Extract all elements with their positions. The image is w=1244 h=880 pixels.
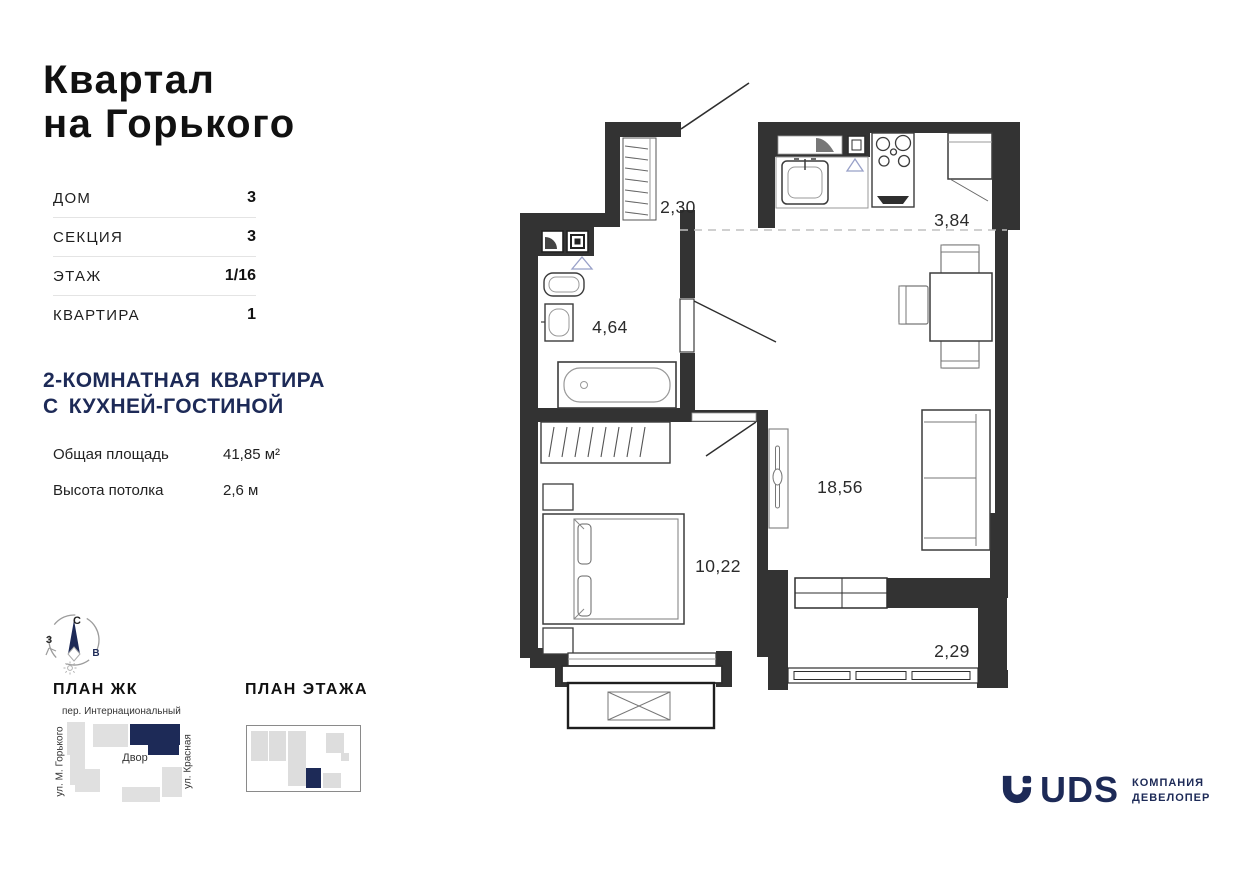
building-block [67,722,85,755]
building-block [75,769,100,792]
fridge [948,133,992,201]
uds-tagline: КОМПАНИЯ ДЕВЕЛОПЕР [1132,777,1210,804]
flat-block [341,753,349,761]
spec-ceiling-height: Высота потолка 2,6 м [53,482,333,499]
chair-back [941,361,979,368]
bedroom-door [692,413,756,456]
building-block [122,787,160,802]
room-label-balcony: 2,29 [934,641,970,661]
courtyard-label: Двор [105,752,165,764]
kitchen-window [778,136,865,154]
spec-total-area: Общая площадь 41,85 м² [53,446,333,463]
pillow [578,576,591,616]
building-block [93,724,128,747]
nightstand [543,628,573,654]
jk-plan-title: ПЛАН ЖК [53,681,138,699]
flat-block [288,731,306,786]
compass-north-label: С [73,615,81,627]
floor-plan-drawing: 2,30 3,84 4,64 18,56 10,22 2,29 [520,80,1020,752]
uds-tagline-line1: КОМПАНИЯ [1132,777,1210,789]
room-label-bedroom: 10,22 [695,556,741,576]
spec-value: 41,85 м² [223,446,280,463]
apartment-specs: Общая площадь 41,85 м² Высота потолка 2,… [53,446,333,518]
compass-icon: С З В [30,594,122,686]
chair-back [941,245,979,252]
bed [543,484,684,654]
room-label-bathroom: 4,64 [592,317,628,337]
chair-back [899,286,906,324]
spec-label: Высота потолка [53,482,223,499]
compass-west-label: З [46,635,52,646]
spec-value: 2,6 м [223,482,258,499]
floor-plan-mini-map [246,725,361,792]
balcony-door [795,578,887,608]
spec-label: Общая площадь [53,446,223,463]
brand-logo: Квартал на Горького [43,58,296,146]
flat-card-page: Квартал на Горького ДОМ 3 СЕКЦИЯ 3 ЭТАЖ … [0,0,1244,880]
street-label-right: ул. Красная [183,717,194,807]
uds-emblem-icon [1000,774,1034,806]
room-label-kitchen: 3,84 [934,210,970,230]
bathroom-door [680,299,776,352]
floor-plan-mini-title: ПЛАН ЭТАЖА [245,681,368,699]
ac-basket [568,683,714,728]
developer-logo: UDS КОМПАНИЯ ДЕВЕЛОПЕР [1000,772,1210,808]
table-row-section: СЕКЦИЯ 3 [53,218,256,257]
row-value: 1/16 [225,267,256,285]
kitchen-sink [776,157,868,208]
wardrobe [541,422,670,463]
flat-block [323,773,341,788]
apartment-title-line1: 2-КОМНАТНАЯ КВАРТИРА [43,368,325,394]
street-label-left: ул. М. Горького [55,717,66,807]
sliding-door [769,429,788,528]
uds-logo-text: UDS [1040,772,1119,808]
nightstand [543,484,573,510]
hallway-closet [623,138,656,220]
pillow [578,524,591,564]
sofa [922,410,990,550]
balcony-glazing [788,668,978,683]
table-row-house: ДОМ 3 [53,179,256,218]
row-value: 3 [247,228,256,246]
compass-east-label: В [92,648,99,659]
street-label-top: пер. Интернациональный [62,706,181,717]
bedroom-window [562,653,722,683]
sun-icon [64,662,77,675]
flat-block [326,733,344,753]
toilet [544,273,584,296]
row-label: ДОМ [53,190,91,207]
flat-block [269,731,286,761]
room-label-living-room: 18,56 [817,477,863,497]
brand-line2: на Горького [43,102,296,146]
bathtub [558,362,676,408]
row-value: 3 [247,189,256,207]
stove [872,133,914,207]
bathroom-marker-triangle [572,257,592,269]
apartment-title: 2-КОМНАТНАЯ КВАРТИРА С КУХНЕЙ-ГОСТИНОЙ [43,368,325,420]
dining-table [899,245,992,368]
brand-line1: Квартал [43,58,296,102]
row-label: ЭТАЖ [53,268,102,285]
entrance-door-line [681,83,749,129]
apartment-info-table: ДОМ 3 СЕКЦИЯ 3 ЭТАЖ 1/16 КВАРТИРА 1 [53,179,256,334]
building-block [162,767,182,797]
row-label: СЕКЦИЯ [53,229,123,246]
flat-block [251,731,268,761]
table-row-floor: ЭТАЖ 1/16 [53,257,256,296]
row-value: 1 [247,306,256,324]
row-label: КВАРТИРА [53,307,140,324]
bathroom-sink [541,304,573,341]
highlighted-building-block [130,724,180,745]
apartment-title-line2: С КУХНЕЙ-ГОСТИНОЙ [43,394,325,420]
compass-arrow-tip [46,648,56,655]
jk-plan-map: пер. Интернациональный ул. М. Горького у… [50,700,228,818]
uds-tagline-line2: ДЕВЕЛОПЕР [1132,792,1210,804]
room-label-hallway: 2,30 [660,197,696,217]
highlighted-flat-block [306,768,321,788]
table-row-flat: КВАРТИРА 1 [53,296,256,334]
